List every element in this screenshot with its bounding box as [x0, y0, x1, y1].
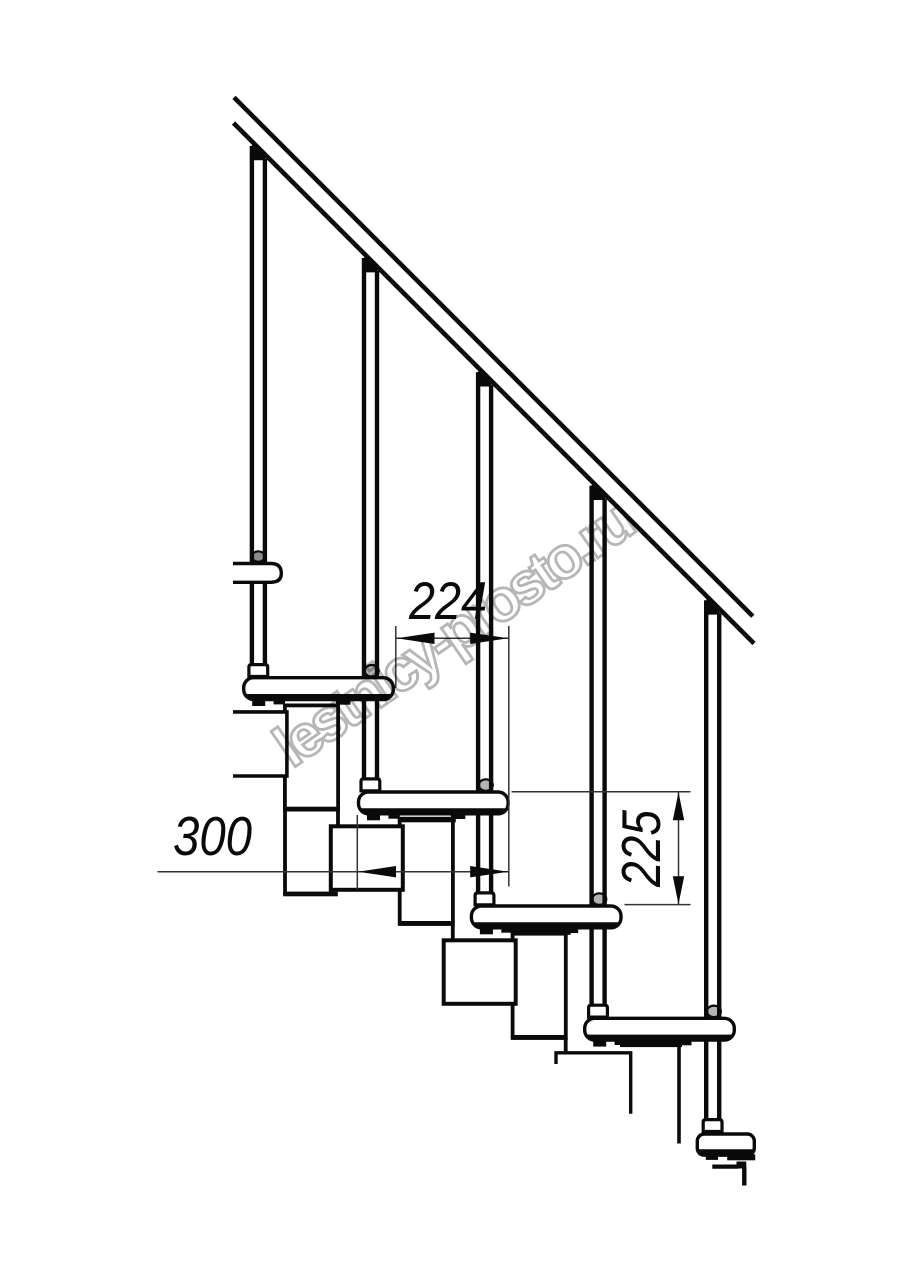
svg-text:300: 300: [173, 805, 252, 867]
svg-text:225: 225: [610, 810, 672, 888]
